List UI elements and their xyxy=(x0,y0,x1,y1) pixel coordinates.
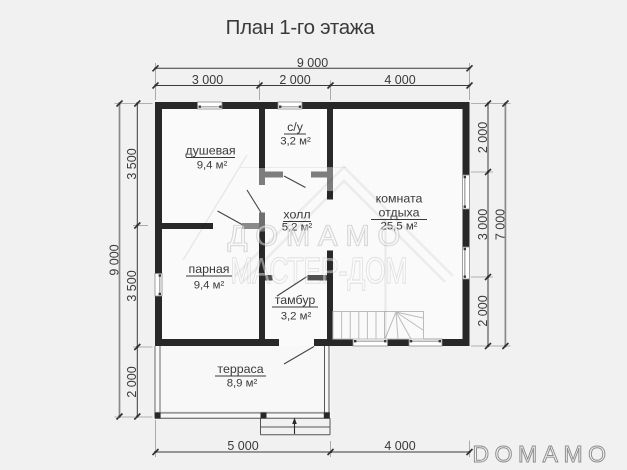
svg-text:3 500: 3 500 xyxy=(125,270,139,301)
svg-text:комната: комната xyxy=(376,192,423,206)
svg-text:3,2 м²: 3,2 м² xyxy=(280,136,311,148)
svg-text:ДОМАМО: ДОМАМО xyxy=(228,221,408,253)
svg-text:9,4 м²: 9,4 м² xyxy=(197,160,228,172)
svg-text:2 000: 2 000 xyxy=(279,73,310,87)
svg-text:3,2 м²: 3,2 м² xyxy=(281,311,312,323)
svg-text:тамбур: тамбур xyxy=(275,293,316,307)
svg-text:DOMAMO: DOMAMO xyxy=(472,441,611,467)
svg-text:3 000: 3 000 xyxy=(476,209,490,240)
svg-text:2 000: 2 000 xyxy=(476,295,490,326)
svg-text:парная: парная xyxy=(189,262,230,276)
svg-text:2 000: 2 000 xyxy=(125,366,139,397)
svg-text:4 000: 4 000 xyxy=(384,73,415,87)
svg-text:9 000: 9 000 xyxy=(107,244,121,275)
svg-text:7 000: 7 000 xyxy=(493,209,507,240)
svg-text:3 000: 3 000 xyxy=(192,73,223,87)
svg-text:5 000: 5 000 xyxy=(227,439,258,453)
svg-text:душевая: душевая xyxy=(185,144,235,158)
svg-text:8,9 м²: 8,9 м² xyxy=(227,378,258,390)
svg-text:9 000: 9 000 xyxy=(297,56,328,70)
svg-text:терраса: терраса xyxy=(217,362,263,376)
svg-text:МАСТЕР-ДОМ: МАСТЕР-ДОМ xyxy=(231,250,408,291)
svg-text:9,4 м²: 9,4 м² xyxy=(194,280,225,292)
svg-text:2 000: 2 000 xyxy=(476,122,490,153)
svg-text:План 1-го этажа: План 1-го этажа xyxy=(226,16,376,39)
svg-text:с/у: с/у xyxy=(287,120,304,134)
svg-text:4 000: 4 000 xyxy=(384,439,415,453)
svg-text:3 500: 3 500 xyxy=(125,148,139,179)
